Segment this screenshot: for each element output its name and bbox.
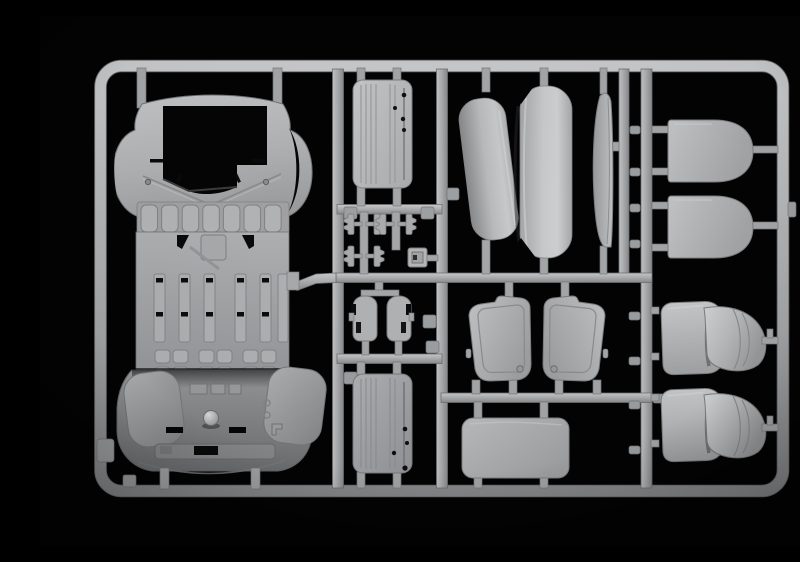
sprue-photo bbox=[40, 16, 800, 546]
photo-vignette bbox=[40, 16, 800, 546]
sprue-photo-canvas bbox=[40, 16, 800, 546]
